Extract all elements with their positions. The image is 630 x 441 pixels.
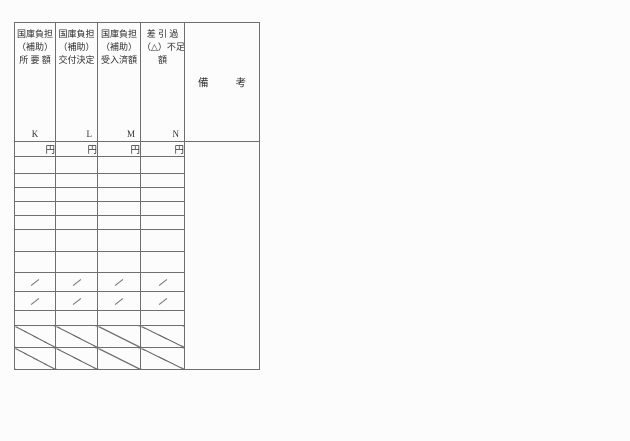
slash-mark-icon (115, 298, 123, 305)
slash-cell (98, 292, 141, 311)
slash-cell (56, 292, 98, 311)
amount-cell (141, 202, 185, 216)
amount-cell (56, 202, 98, 216)
unit-yen-cell: 円 (141, 142, 185, 157)
unit-yen-cell: 円 (98, 142, 141, 157)
amount-cell (141, 252, 185, 273)
remarks-body-cell (185, 142, 260, 370)
crossed-out-cell (15, 348, 56, 370)
column-letter-L: L (57, 129, 96, 139)
amount-cell (98, 230, 141, 252)
amount-cell (141, 311, 185, 326)
amount-cell (56, 174, 98, 188)
slash-mark-icon (31, 279, 39, 286)
slash-mark-icon (72, 279, 80, 286)
amount-cell (56, 230, 98, 252)
crossed-out-cell (141, 326, 185, 348)
amount-cell (98, 311, 141, 326)
amount-cell (141, 188, 185, 202)
col-header-kokko-futan-shoyo: 国庫負担 （補助） 所 要 額 K (15, 23, 56, 142)
slash-cell (15, 273, 56, 292)
amount-cell (15, 188, 56, 202)
amount-cell (56, 188, 98, 202)
amount-cell (98, 252, 141, 273)
unit-row: 円 円 円 円 (15, 142, 260, 157)
column-letter-K: K (16, 129, 54, 139)
amount-cell (15, 174, 56, 188)
column-letter-N: N (142, 129, 183, 139)
crossed-out-cell (15, 326, 56, 348)
amount-cell (15, 230, 56, 252)
amount-cell (141, 230, 185, 252)
amount-cell (56, 216, 98, 230)
amount-cell (98, 157, 141, 174)
crossed-out-cell (98, 348, 141, 370)
col-header-biko: 備 考 (185, 23, 260, 142)
col-header-sashihiki-fusoku: 差 引 過 （△）不足 額 N (141, 23, 185, 142)
biko-label-right: 考 (236, 75, 247, 90)
amount-cell (15, 157, 56, 174)
slash-cell (15, 292, 56, 311)
amount-cell (56, 252, 98, 273)
header-text: 国庫負担 （補助） 受入済額 (99, 28, 139, 67)
subsidy-form-table: 国庫負担 （補助） 所 要 額 K 国庫負担 （補助） 交付決定 L (14, 22, 260, 370)
crossed-out-cell (98, 326, 141, 348)
col-header-kofu-kettei: 国庫負担 （補助） 交付決定 L (56, 23, 98, 142)
amount-cell (56, 157, 98, 174)
amount-cell (141, 216, 185, 230)
col-header-ukeire-zumi: 国庫負担 （補助） 受入済額 M (98, 23, 141, 142)
unit-yen-cell: 円 (56, 142, 98, 157)
slash-mark-icon (31, 298, 39, 305)
amount-cell (15, 202, 56, 216)
amount-cell (15, 311, 56, 326)
amount-cell (98, 174, 141, 188)
header-text: 国庫負担 （補助） 所 要 額 (16, 28, 54, 67)
amount-cell (56, 311, 98, 326)
header-text: 差 引 過 （△）不足 額 (142, 28, 183, 67)
slash-mark-icon (115, 279, 123, 286)
slash-mark-icon (158, 279, 166, 286)
crossed-out-cell (141, 348, 185, 370)
amount-cell (98, 202, 141, 216)
biko-label-left: 備 (198, 75, 209, 90)
crossed-out-cell (56, 348, 98, 370)
slash-mark-icon (72, 298, 80, 305)
form-page: 国庫負担 （補助） 所 要 額 K 国庫負担 （補助） 交付決定 L (0, 0, 630, 441)
unit-yen-cell: 円 (15, 142, 56, 157)
slash-cell (141, 292, 185, 311)
amount-cell (98, 188, 141, 202)
slash-cell (98, 273, 141, 292)
amount-cell (15, 216, 56, 230)
amount-cell (15, 252, 56, 273)
header-row: 国庫負担 （補助） 所 要 額 K 国庫負担 （補助） 交付決定 L (15, 23, 260, 142)
slash-cell (141, 273, 185, 292)
header-text: 国庫負担 （補助） 交付決定 (57, 28, 96, 67)
crossed-out-cell (56, 326, 98, 348)
amount-cell (141, 174, 185, 188)
amount-cell (141, 157, 185, 174)
column-letter-M: M (99, 129, 139, 139)
slash-cell (56, 273, 98, 292)
slash-mark-icon (158, 298, 166, 305)
amount-cell (98, 216, 141, 230)
